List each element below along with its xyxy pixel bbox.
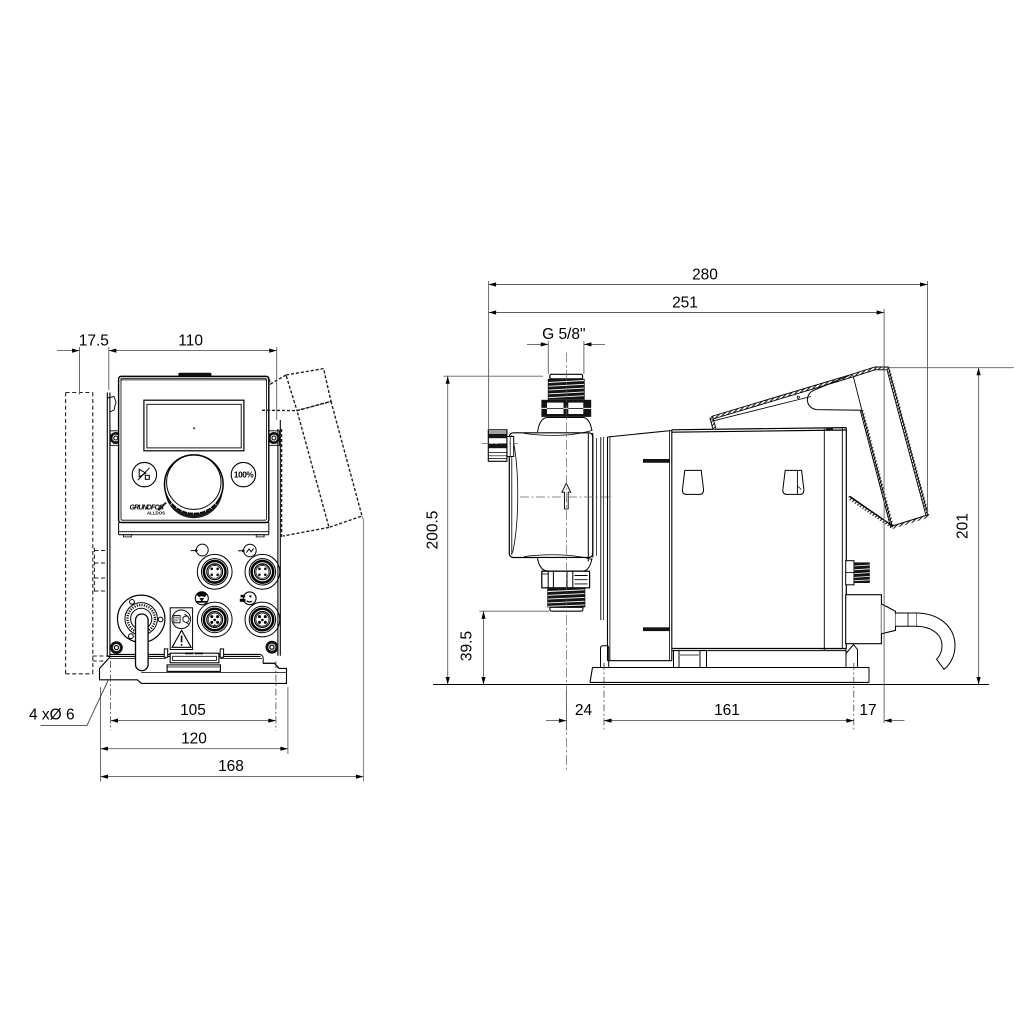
svg-text:200.5: 200.5 <box>425 511 442 550</box>
svg-text:251: 251 <box>672 295 698 312</box>
svg-text:201: 201 <box>955 513 972 539</box>
svg-text:ALLDOS: ALLDOS <box>147 511 165 516</box>
svg-text:G 5/8": G 5/8" <box>542 326 585 343</box>
svg-text:100%: 100% <box>234 471 254 480</box>
svg-text:4 xØ 6: 4 xØ 6 <box>29 707 75 724</box>
svg-text:105: 105 <box>180 702 206 719</box>
svg-text:161: 161 <box>714 702 740 719</box>
svg-text:39.5: 39.5 <box>459 631 476 661</box>
svg-text:168: 168 <box>218 758 244 775</box>
svg-text:120: 120 <box>181 730 207 747</box>
svg-text:17: 17 <box>859 702 876 719</box>
svg-text:110: 110 <box>178 333 203 350</box>
svg-text:24: 24 <box>575 702 593 719</box>
svg-text:17.5: 17.5 <box>79 333 109 350</box>
svg-text:280: 280 <box>692 266 718 283</box>
